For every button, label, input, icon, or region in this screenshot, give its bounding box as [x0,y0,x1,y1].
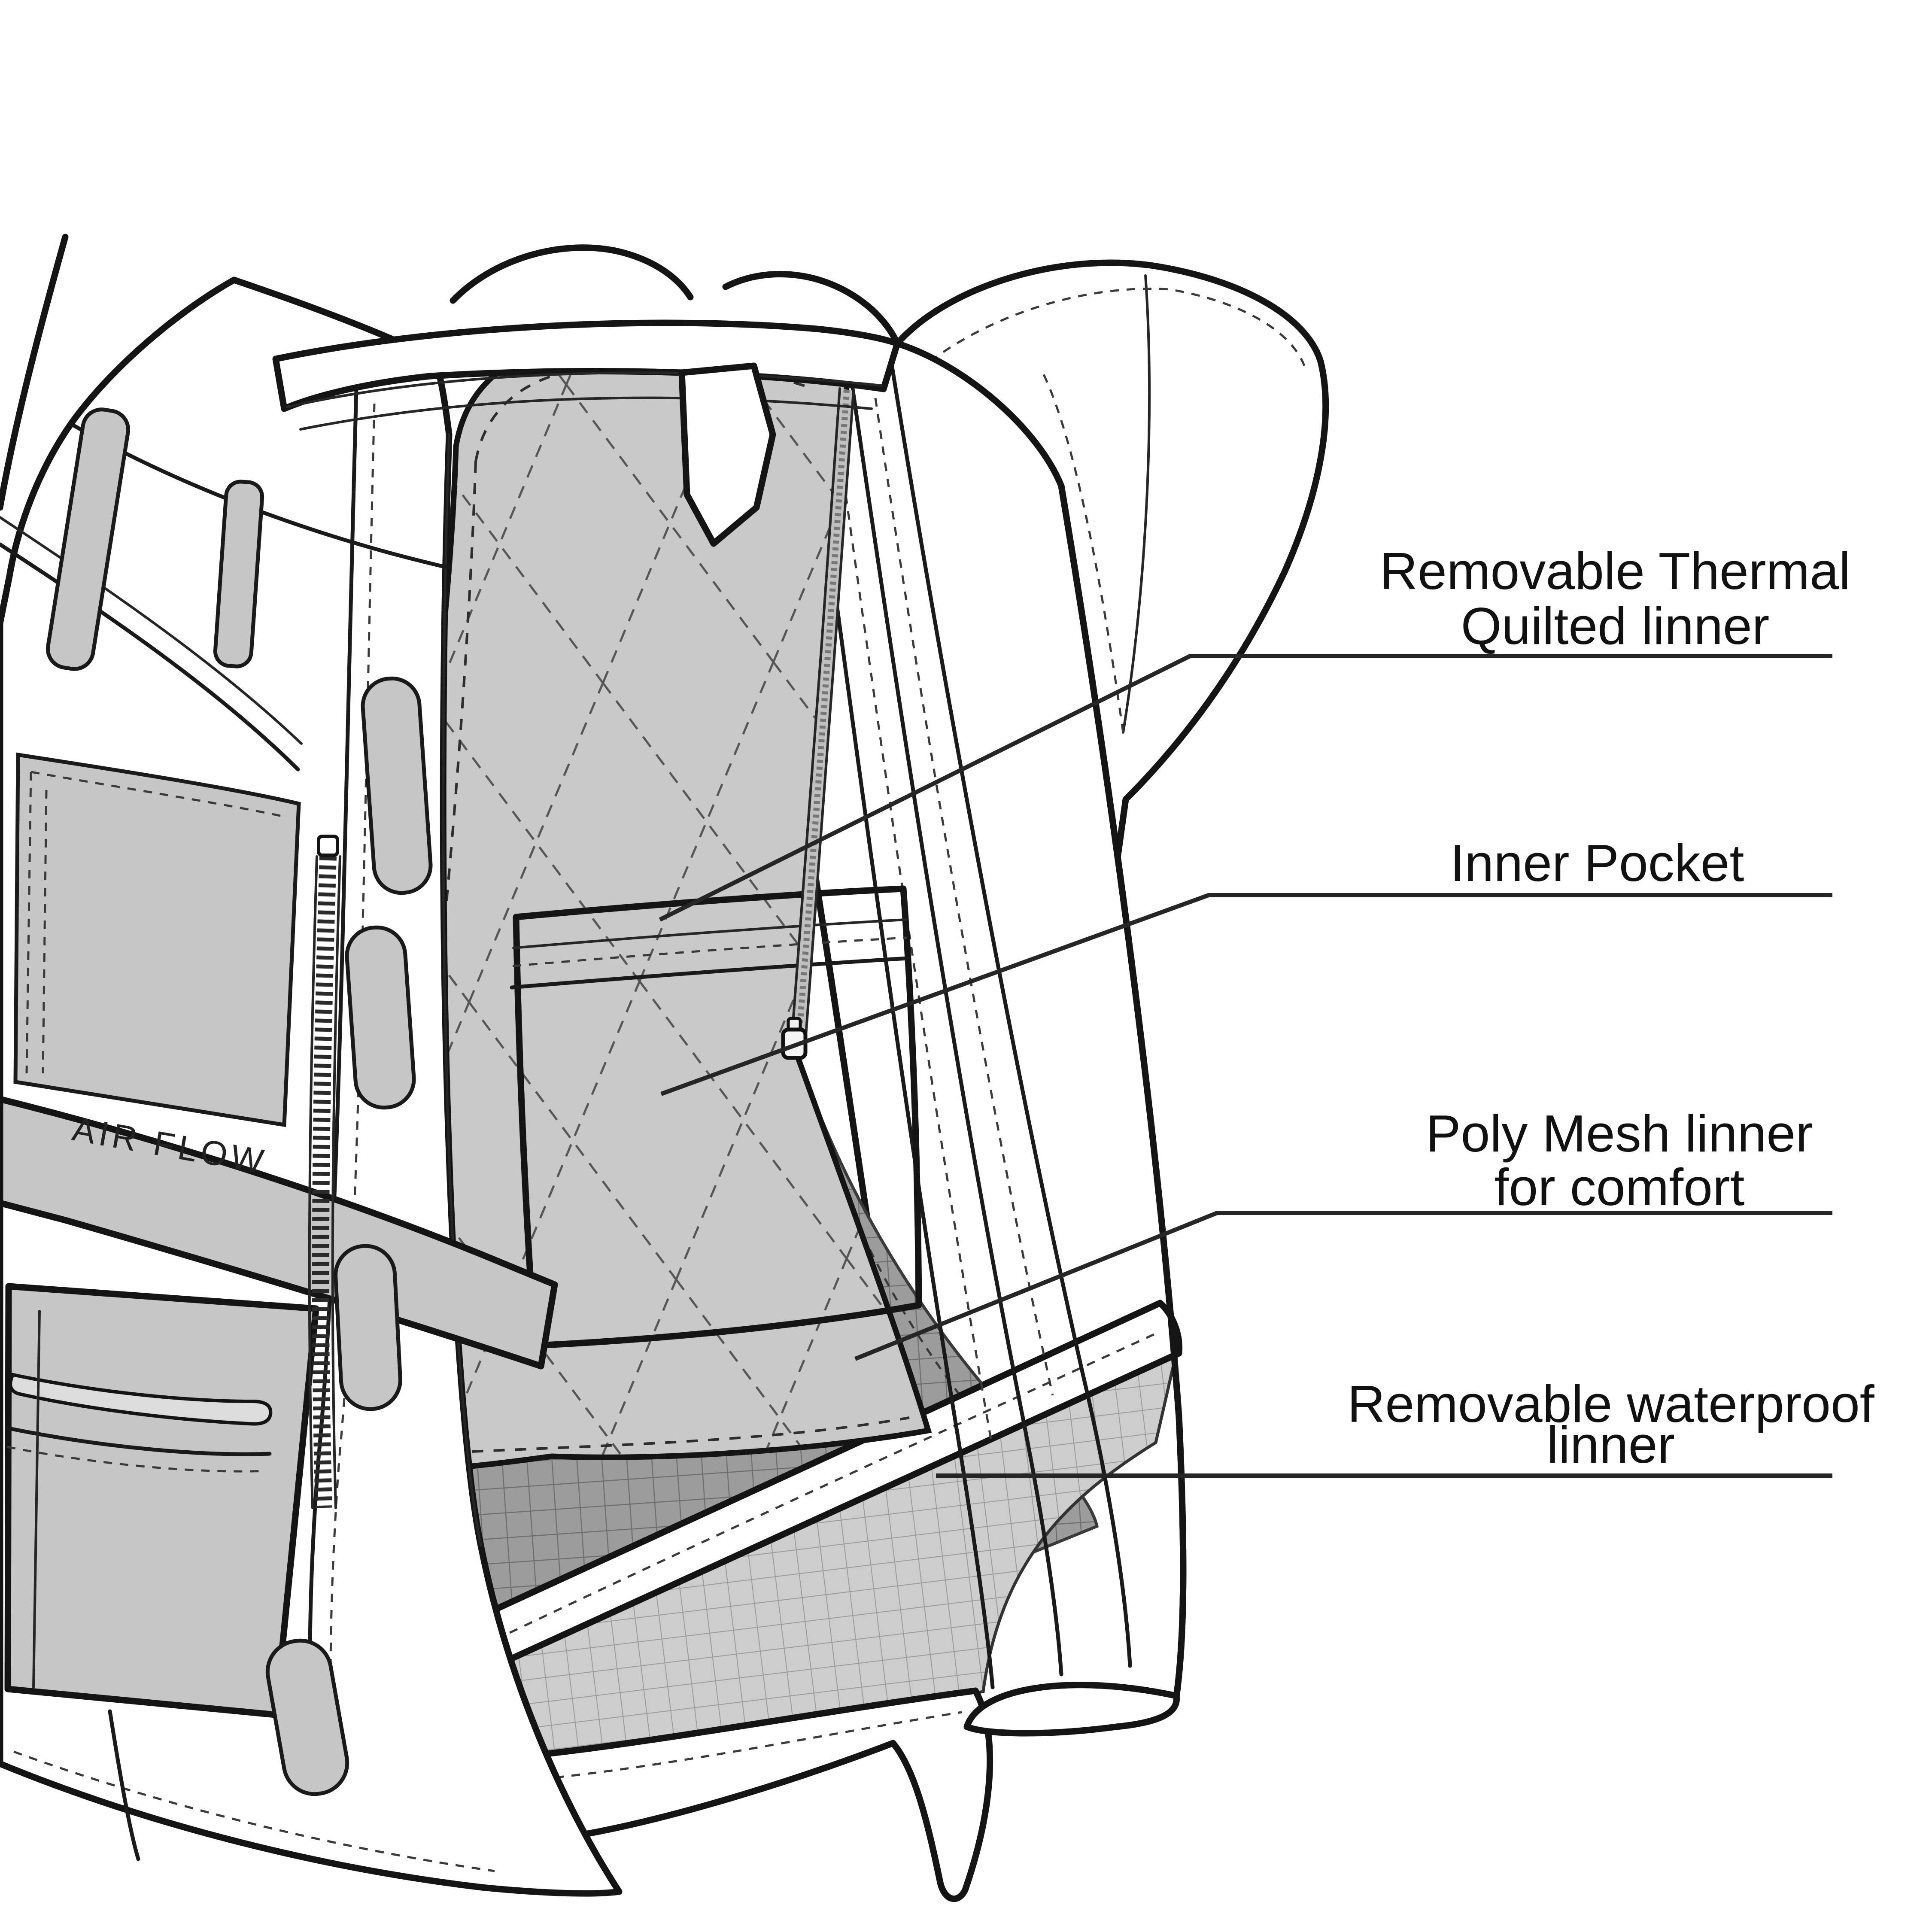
callout-text: linner [1547,1416,1675,1474]
callout-text: for comfort [1494,1158,1744,1216]
callout-text: Poly Mesh linner [1426,1104,1813,1163]
callout-text: Inner Pocket [1450,834,1744,892]
callout-text: Removable Thermal [1380,542,1850,600]
callout-text: Quilted linner [1461,597,1770,655]
jacket-sketch: AIR FLOW [0,237,1326,1899]
jacket-technical-diagram: AIR FLOW [0,0,1932,1932]
chest-panel [15,755,299,1125]
cargo-pocket [7,1286,316,1715]
